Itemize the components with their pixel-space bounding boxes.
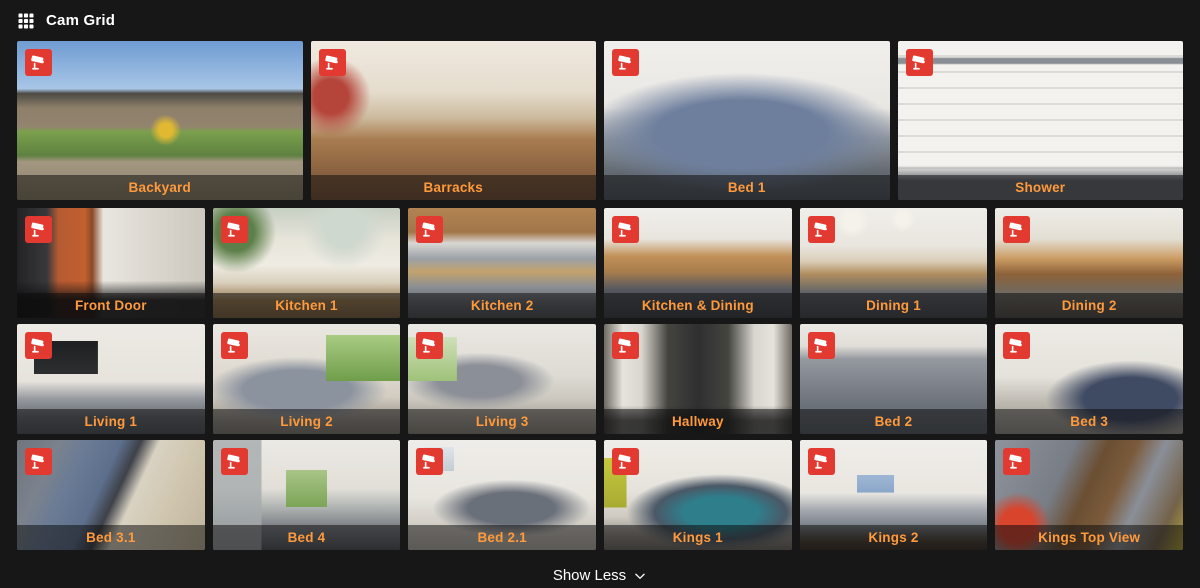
camera-label-bar: Kitchen & Dining	[604, 293, 792, 318]
camera-row: Bed 3.1 Bed 4	[17, 440, 1183, 550]
footer: Show Less	[0, 556, 1200, 588]
camera-label-bar: Living 1	[17, 409, 205, 434]
camera-tile[interactable]: Kings Top View	[995, 440, 1183, 550]
camera-icon	[808, 448, 835, 475]
camera-label: Bed 3	[1070, 414, 1108, 429]
camera-label-bar: Dining 2	[995, 293, 1183, 318]
camera-tile[interactable]: Living 3	[408, 324, 596, 434]
camera-icon	[25, 332, 52, 359]
camera-label-bar: Living 3	[408, 409, 596, 434]
camera-label-bar: Hallway	[604, 409, 792, 434]
camera-icon	[221, 216, 248, 243]
camera-tile[interactable]: Bed 3	[995, 324, 1183, 434]
camera-label-bar: Dining 1	[800, 293, 988, 318]
camera-tile[interactable]: Bed 2	[800, 324, 988, 434]
camera-label: Kings 1	[673, 530, 723, 545]
camera-label: Front Door	[75, 298, 147, 313]
camera-label-bar: Bed 2	[800, 409, 988, 434]
camera-tile[interactable]: Hallway	[604, 324, 792, 434]
camera-label-bar: Front Door	[17, 293, 205, 318]
camera-icon	[416, 332, 443, 359]
camera-label-bar: Kings Top View	[995, 525, 1183, 550]
camera-label: Bed 1	[728, 180, 766, 195]
camera-icon	[612, 49, 639, 76]
camera-icon	[221, 332, 248, 359]
camera-label-bar: Shower	[898, 175, 1184, 200]
camera-label: Bed 2	[875, 414, 913, 429]
camera-icon	[25, 448, 52, 475]
camera-label: Living 3	[476, 414, 529, 429]
camera-label: Bed 3.1	[86, 530, 135, 545]
camera-label: Dining 1	[866, 298, 921, 313]
header: Cam Grid	[0, 0, 1200, 41]
show-less-label: Show Less	[553, 567, 626, 584]
camera-tile[interactable]: Shower	[898, 41, 1184, 200]
camera-tile[interactable]: Kitchen 1	[213, 208, 401, 318]
camera-tile[interactable]: Barracks	[311, 41, 597, 200]
grid-icon	[17, 12, 35, 30]
camera-icon	[1003, 332, 1030, 359]
camera-tile[interactable]: Living 1	[17, 324, 205, 434]
camera-icon	[808, 332, 835, 359]
camera-label-bar: Kings 2	[800, 525, 988, 550]
camera-tile[interactable]: Living 2	[213, 324, 401, 434]
camera-icon	[612, 216, 639, 243]
camera-label-bar: Bed 2.1	[408, 525, 596, 550]
camera-label-bar: Living 2	[213, 409, 401, 434]
show-less-button[interactable]: Show Less	[553, 567, 647, 584]
camera-tile[interactable]: Backyard	[17, 41, 303, 200]
camera-label: Dining 2	[1062, 298, 1117, 313]
camera-icon	[319, 49, 346, 76]
camera-icon	[612, 332, 639, 359]
camera-icon	[25, 216, 52, 243]
camera-label: Kings Top View	[1038, 530, 1140, 545]
camera-label: Shower	[1015, 180, 1065, 195]
camera-label-bar: Bed 3	[995, 409, 1183, 434]
camera-label-bar: Barracks	[311, 175, 597, 200]
camera-icon	[808, 216, 835, 243]
camera-icon	[416, 448, 443, 475]
camera-label: Bed 4	[288, 530, 326, 545]
camera-label: Kitchen 2	[471, 298, 534, 313]
camera-tile[interactable]: Bed 3.1	[17, 440, 205, 550]
camera-row: Backyard Barracks	[17, 41, 1183, 200]
camera-label: Living 2	[280, 414, 333, 429]
camera-label: Backyard	[129, 180, 191, 195]
camera-label-bar: Kings 1	[604, 525, 792, 550]
camera-tile[interactable]: Bed 2.1	[408, 440, 596, 550]
camera-tile[interactable]: Kitchen 2	[408, 208, 596, 318]
camera-label-bar: Kitchen 2	[408, 293, 596, 318]
camera-label: Kings 2	[868, 530, 918, 545]
camera-tile[interactable]: Dining 2	[995, 208, 1183, 318]
camera-icon	[906, 49, 933, 76]
camera-icon	[221, 448, 248, 475]
camera-label-bar: Bed 3.1	[17, 525, 205, 550]
camera-label: Barracks	[424, 180, 483, 195]
camera-row: Living 1 Living 2	[17, 324, 1183, 434]
camera-tile[interactable]: Dining 1	[800, 208, 988, 318]
camera-tile[interactable]: Kitchen & Dining	[604, 208, 792, 318]
camera-label: Living 1	[85, 414, 138, 429]
chevron-down-icon	[633, 569, 647, 583]
camera-label: Kitchen 1	[275, 298, 338, 313]
page-title: Cam Grid	[46, 12, 115, 29]
camera-icon	[1003, 216, 1030, 243]
camera-label-bar: Backyard	[17, 175, 303, 200]
camera-label-bar: Bed 1	[604, 175, 890, 200]
camera-grid: Backyard Barracks	[0, 41, 1200, 550]
camera-label: Bed 2.1	[477, 530, 526, 545]
camera-tile[interactable]: Bed 1	[604, 41, 890, 200]
camera-row: Front Door Kitchen 1	[17, 208, 1183, 318]
camera-label: Hallway	[672, 414, 724, 429]
camera-icon	[25, 49, 52, 76]
camera-icon	[1003, 448, 1030, 475]
camera-label-bar: Bed 4	[213, 525, 401, 550]
camera-tile[interactable]: Kings 1	[604, 440, 792, 550]
camera-tile[interactable]: Bed 4	[213, 440, 401, 550]
camera-label-bar: Kitchen 1	[213, 293, 401, 318]
camera-icon	[612, 448, 639, 475]
camera-tile[interactable]: Kings 2	[800, 440, 988, 550]
camera-label: Kitchen & Dining	[642, 298, 754, 313]
camera-icon	[416, 216, 443, 243]
camera-tile[interactable]: Front Door	[17, 208, 205, 318]
